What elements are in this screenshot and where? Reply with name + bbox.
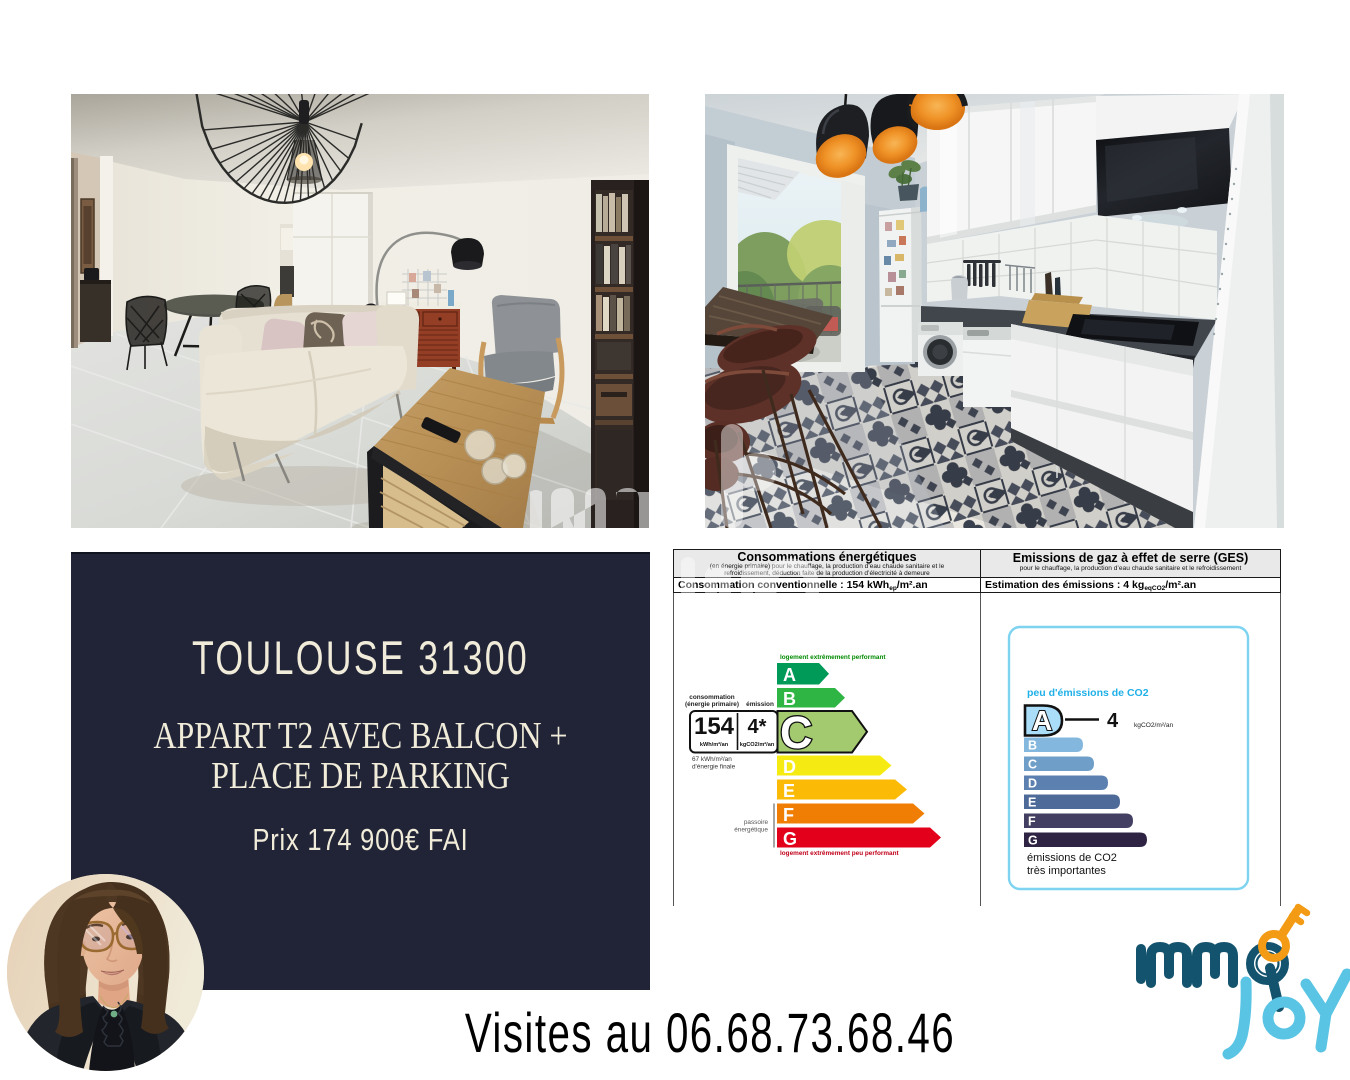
svg-text:C: C bbox=[780, 707, 813, 758]
svg-text:(énergie primaire): (énergie primaire) bbox=[685, 701, 739, 708]
svg-text:E: E bbox=[783, 781, 795, 801]
svg-text:G: G bbox=[1028, 834, 1038, 848]
svg-text:kgCO2/m²/an: kgCO2/m²/an bbox=[740, 741, 775, 748]
svg-text:logement extrêmement peu perfo: logement extrêmement peu performant bbox=[780, 850, 899, 857]
svg-text:kWh/m²/an: kWh/m²/an bbox=[700, 741, 729, 748]
svg-text:F: F bbox=[1028, 815, 1036, 829]
svg-text:énergétique: énergétique bbox=[734, 827, 768, 834]
svg-text:4: 4 bbox=[1107, 710, 1119, 732]
svg-text:consommation: consommation bbox=[689, 694, 735, 701]
svg-text:passoire: passoire bbox=[744, 819, 769, 826]
svg-text:D: D bbox=[1028, 777, 1037, 791]
svg-text:A: A bbox=[1032, 705, 1052, 736]
svg-text:émissions de CO2: émissions de CO2 bbox=[1027, 852, 1117, 864]
svg-text:B: B bbox=[783, 689, 796, 709]
svg-text:F: F bbox=[783, 805, 794, 825]
svg-text:E: E bbox=[1028, 796, 1036, 810]
svg-text:peu d'émissions de CO2: peu d'émissions de CO2 bbox=[1027, 687, 1149, 699]
svg-text:D: D bbox=[783, 757, 796, 777]
svg-text:G: G bbox=[783, 829, 797, 849]
svg-text:C: C bbox=[1028, 758, 1037, 772]
svg-text:émission: émission bbox=[746, 701, 774, 708]
svg-text:très importantes: très importantes bbox=[1027, 865, 1106, 877]
svg-text:B: B bbox=[1028, 739, 1037, 753]
svg-text:67 kWh/m²/an: 67 kWh/m²/an bbox=[692, 756, 732, 763]
svg-text:kgCO2/m²/an: kgCO2/m²/an bbox=[1134, 722, 1174, 729]
svg-text:154: 154 bbox=[694, 713, 735, 740]
svg-text:d'énergie finale: d'énergie finale bbox=[692, 764, 736, 771]
svg-text:4*: 4* bbox=[748, 716, 767, 738]
